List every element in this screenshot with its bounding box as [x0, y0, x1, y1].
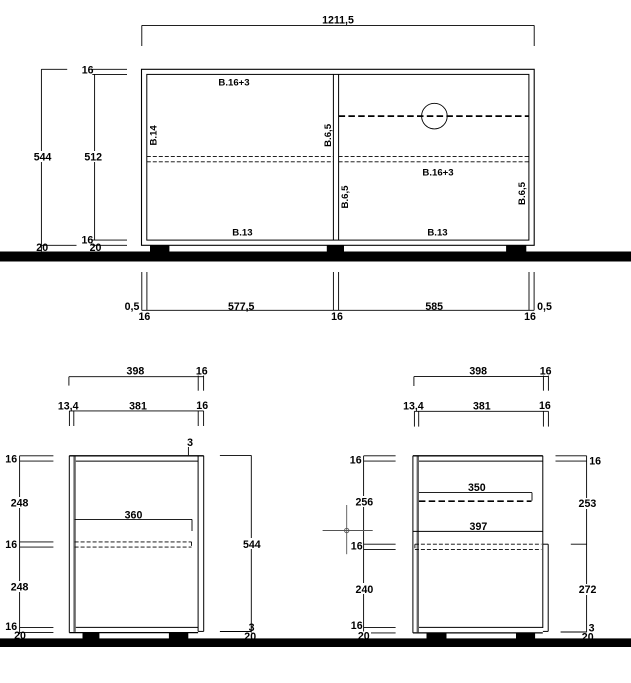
svg-text:544: 544 [34, 152, 52, 164]
svg-text:13,4: 13,4 [58, 400, 79, 412]
svg-text:360: 360 [125, 509, 143, 521]
svg-text:B.14: B.14 [148, 125, 159, 146]
svg-text:16: 16 [524, 311, 536, 323]
svg-text:577,5: 577,5 [228, 301, 255, 313]
svg-text:256: 256 [355, 496, 373, 508]
svg-text:16: 16 [5, 454, 17, 466]
svg-text:B.16+3: B.16+3 [422, 167, 453, 178]
svg-text:16: 16 [540, 366, 552, 378]
svg-text:512: 512 [84, 152, 102, 164]
svg-text:B.13: B.13 [232, 228, 252, 239]
svg-text:248: 248 [11, 582, 29, 594]
svg-text:1211,5: 1211,5 [322, 15, 354, 27]
svg-text:397: 397 [470, 521, 488, 533]
svg-text:13,4: 13,4 [403, 401, 424, 413]
svg-text:381: 381 [473, 400, 491, 412]
svg-text:B.16+3: B.16+3 [218, 77, 249, 88]
svg-text:16: 16 [589, 455, 601, 467]
svg-text:B.13: B.13 [427, 228, 447, 239]
svg-text:16: 16 [350, 455, 362, 467]
svg-text:248: 248 [11, 497, 29, 509]
svg-text:398: 398 [127, 366, 145, 378]
svg-text:16: 16 [196, 366, 208, 378]
svg-text:0,5: 0,5 [537, 301, 552, 313]
svg-text:16: 16 [351, 541, 363, 553]
svg-text:272: 272 [579, 584, 597, 596]
svg-text:16: 16 [196, 400, 208, 412]
svg-text:16: 16 [82, 65, 94, 77]
svg-text:B.6,5: B.6,5 [340, 185, 351, 209]
svg-text:16: 16 [5, 539, 17, 551]
svg-text:240: 240 [356, 584, 374, 596]
svg-text:16: 16 [331, 311, 343, 323]
svg-text:585: 585 [425, 301, 443, 313]
svg-text:B.6,5: B.6,5 [517, 181, 528, 205]
svg-text:544: 544 [243, 539, 261, 551]
svg-text:253: 253 [579, 498, 597, 510]
svg-text:350: 350 [468, 482, 486, 494]
svg-text:16: 16 [539, 400, 551, 412]
svg-text:16: 16 [139, 311, 151, 323]
svg-text:381: 381 [129, 400, 147, 412]
svg-text:398: 398 [469, 366, 487, 378]
svg-text:0,5: 0,5 [125, 301, 140, 313]
svg-text:B.6,5: B.6,5 [323, 123, 334, 147]
